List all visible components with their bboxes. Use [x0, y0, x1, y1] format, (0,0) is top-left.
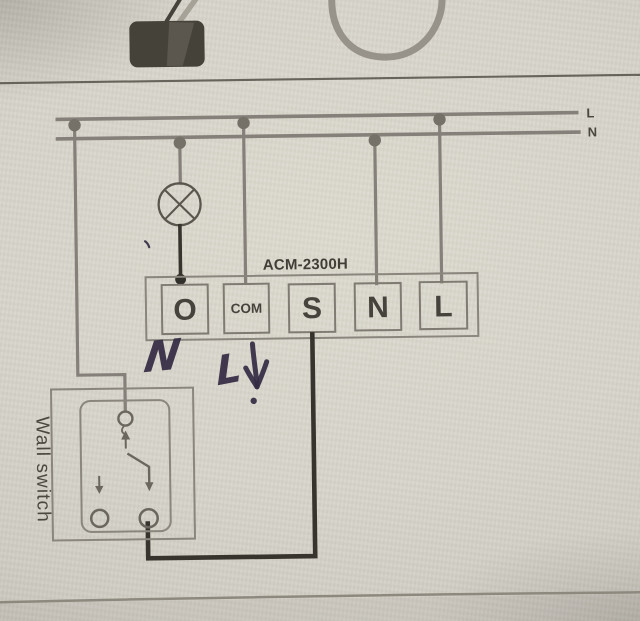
terminal-s: S — [289, 284, 336, 333]
handwritten-arrow-icon — [245, 344, 267, 404]
switch-feed-wire — [75, 123, 126, 413]
device-knob-icon — [129, 20, 205, 67]
switch-contact-hook — [122, 426, 125, 434]
pen-speck — [145, 241, 149, 247]
terminal-s-label: S — [302, 292, 322, 325]
switch-arrow-down-icon — [145, 482, 154, 491]
lamp-feed-wire — [180, 144, 181, 185]
lamp-icon — [158, 183, 201, 226]
power-bus-neutral-line — [56, 132, 581, 139]
handwritten-live-mark: L — [215, 344, 242, 395]
wiring-diagram: L N ACM-2300H — [0, 0, 640, 621]
page-edge-shade — [0, 594, 640, 621]
terminal-n-label: N — [367, 291, 389, 324]
neutral-bus-label: N — [588, 124, 598, 139]
page-tilt-group: L N ACM-2300H — [0, 0, 640, 621]
terminal-l-label: L — [434, 290, 453, 323]
junction-dot-dark — [175, 274, 186, 285]
module-label: ACM-2300H — [263, 256, 348, 274]
wall-switch-box — [51, 388, 195, 541]
live-terminal-feed-wire — [440, 118, 442, 283]
manual-page-photo: L N ACM-2300H — [0, 0, 640, 621]
live-bus-label: L — [586, 105, 594, 120]
neutral-terminal-feed-wire — [375, 141, 377, 285]
terminal-com-label: COM — [231, 301, 263, 316]
switch-top-contact — [118, 411, 132, 425]
handwritten-neutral-mark: N — [141, 330, 183, 384]
terminal-n: N — [355, 283, 402, 331]
lamp-output-wire — [180, 224, 181, 279]
page-divider-top — [0, 75, 640, 84]
terminal-o: O — [162, 284, 209, 334]
cable-loop-icon — [332, 0, 443, 58]
switch-lever — [127, 453, 153, 491]
terminal-com: COM — [224, 284, 270, 334]
power-bus-live-line — [55, 113, 578, 120]
terminal-l: L — [420, 282, 468, 330]
switch-contact-left — [91, 510, 108, 527]
wall-switch-label: Wall switch — [31, 416, 53, 523]
switch-arrow-down-left-icon — [95, 476, 104, 494]
com-feed-wire — [244, 121, 246, 285]
terminal-o-label: O — [173, 294, 197, 327]
